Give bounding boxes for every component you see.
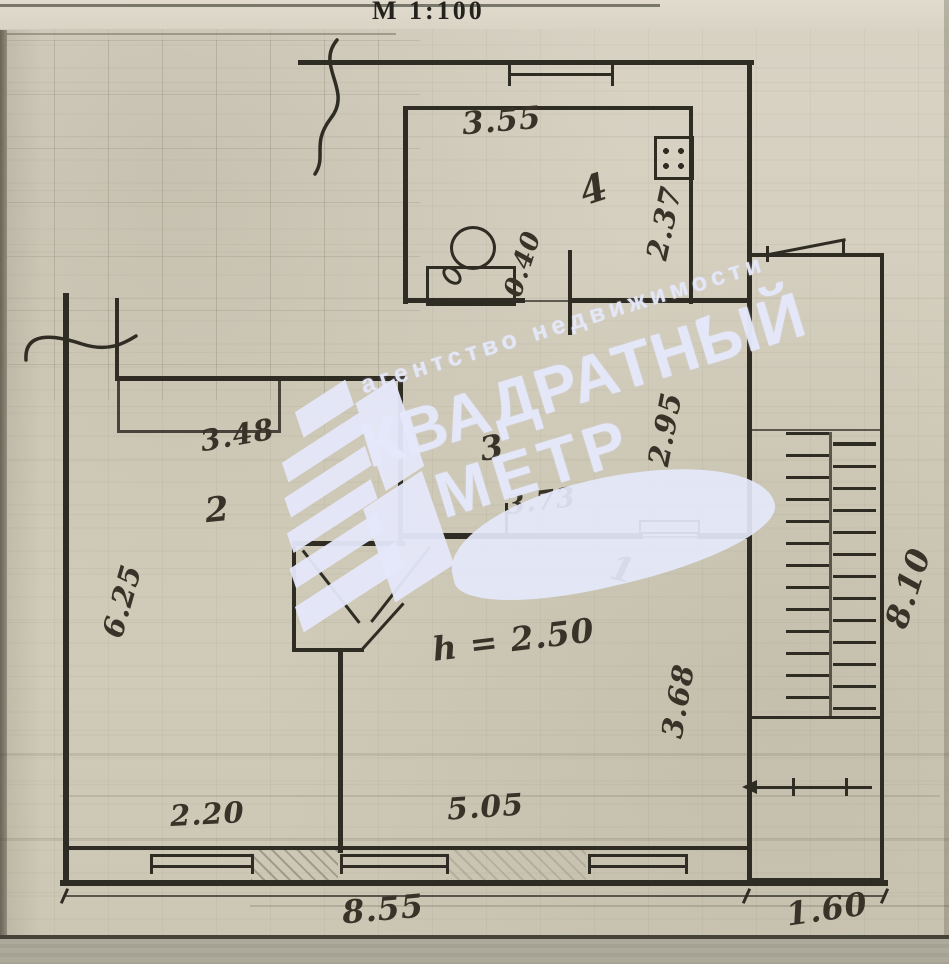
streak-band-1 bbox=[0, 753, 949, 756]
window-top bbox=[508, 62, 614, 86]
room2-wall-left-inner bbox=[115, 298, 119, 380]
left-shadow bbox=[0, 30, 42, 937]
dim-total-width: 8.55 bbox=[340, 887, 425, 932]
window-bottom-2 bbox=[340, 854, 449, 874]
door-leaf-open bbox=[639, 520, 700, 534]
kitchen-wall-top bbox=[403, 106, 693, 110]
stair-steps-right-flight bbox=[833, 432, 876, 719]
stair-steps-left-flight bbox=[786, 432, 829, 719]
dimension-line-bottom bbox=[63, 895, 885, 897]
watermark-brand-text-1: КВАДРАТНЫЙ bbox=[353, 277, 815, 482]
dim-kitchen-depth: 2.37 bbox=[637, 173, 690, 274]
door-swing-right bbox=[371, 546, 431, 622]
door-threshold bbox=[643, 536, 697, 538]
bottom-wall-inner-line bbox=[69, 846, 751, 850]
watermark-agency-text: агентство недвижимости bbox=[357, 249, 769, 400]
ceiling-height-note: h = 2.50 bbox=[430, 610, 597, 669]
dim-room2-depth: 6.25 bbox=[92, 550, 151, 652]
dim-hall-depth: 2.95 bbox=[639, 379, 691, 480]
room-number-2: 2 bbox=[203, 489, 232, 531]
watermark-swoosh-shape bbox=[439, 441, 785, 620]
stair-wall-bottom bbox=[747, 878, 884, 884]
closet-wall-left bbox=[292, 541, 296, 652]
window-bottom-3 bbox=[588, 854, 688, 874]
photo-left-edge bbox=[0, 30, 7, 937]
wall-pier-hatch-2 bbox=[446, 850, 586, 881]
dim-room2-bottom-width: 2.20 bbox=[169, 795, 245, 833]
room-number-3: 3 bbox=[477, 426, 507, 469]
hall-room1-wall-right bbox=[697, 533, 751, 539]
wall-pier-hatch-1 bbox=[251, 850, 338, 881]
paper-fold-line bbox=[0, 33, 396, 35]
kitchen-wall-left bbox=[403, 106, 408, 304]
photo-top-edge-line bbox=[0, 4, 660, 7]
entry-door-jamb-2 bbox=[842, 240, 845, 256]
closet-wall-top bbox=[296, 541, 405, 546]
stair-landing-bottom-line bbox=[752, 716, 880, 719]
closet-wall-bottom bbox=[292, 648, 364, 652]
break-mark-top bbox=[303, 38, 363, 178]
scanned-floor-plan-photo: М 1:100 bbox=[0, 0, 949, 964]
door-swing-left bbox=[302, 549, 361, 623]
photo-right-edge bbox=[944, 0, 949, 964]
scale-label: М 1:100 bbox=[372, 0, 485, 26]
photo-bottom-edge-line bbox=[0, 935, 949, 939]
kitchen-door-jamb bbox=[568, 250, 572, 335]
stair-stringer-line bbox=[829, 432, 832, 719]
window-bottom-1 bbox=[150, 854, 254, 874]
outer-wall-right bbox=[747, 60, 752, 885]
dim-room1-depth: 3.68 bbox=[653, 651, 703, 751]
stair-direction-arrow bbox=[756, 786, 872, 789]
dim-stair-bay-width: 1.60 bbox=[784, 884, 870, 933]
sink-icon bbox=[450, 226, 496, 270]
room2-wall-right-upper bbox=[398, 376, 403, 546]
streak-band-3 bbox=[0, 838, 949, 841]
break-mark-left bbox=[22, 308, 140, 378]
outer-wall-left bbox=[63, 293, 69, 885]
watermark-cursor-icon bbox=[695, 310, 718, 333]
dim-stair-depth: 8.10 bbox=[875, 536, 941, 639]
kitchen-door-threshold bbox=[525, 300, 568, 302]
dim-hall-width: 3.73 bbox=[504, 482, 577, 521]
room-number-4: 4 bbox=[574, 163, 614, 214]
photo-bottom-band bbox=[0, 939, 949, 964]
stair-arrow-tick-1 bbox=[792, 778, 795, 796]
kitchen-wall-bottom-right bbox=[568, 298, 751, 303]
hall-room1-wall-left bbox=[403, 533, 643, 539]
stair-landing-top-line bbox=[752, 429, 880, 431]
stair-wall-right bbox=[880, 253, 884, 885]
room1-wall-left-lower bbox=[338, 650, 343, 853]
room-number-1: 1 bbox=[606, 548, 640, 593]
stair-arrow-tick-2 bbox=[845, 778, 848, 796]
dim-kitchen-width: 3.55 bbox=[461, 100, 543, 143]
dim-room1-width: 5.05 bbox=[446, 787, 525, 827]
